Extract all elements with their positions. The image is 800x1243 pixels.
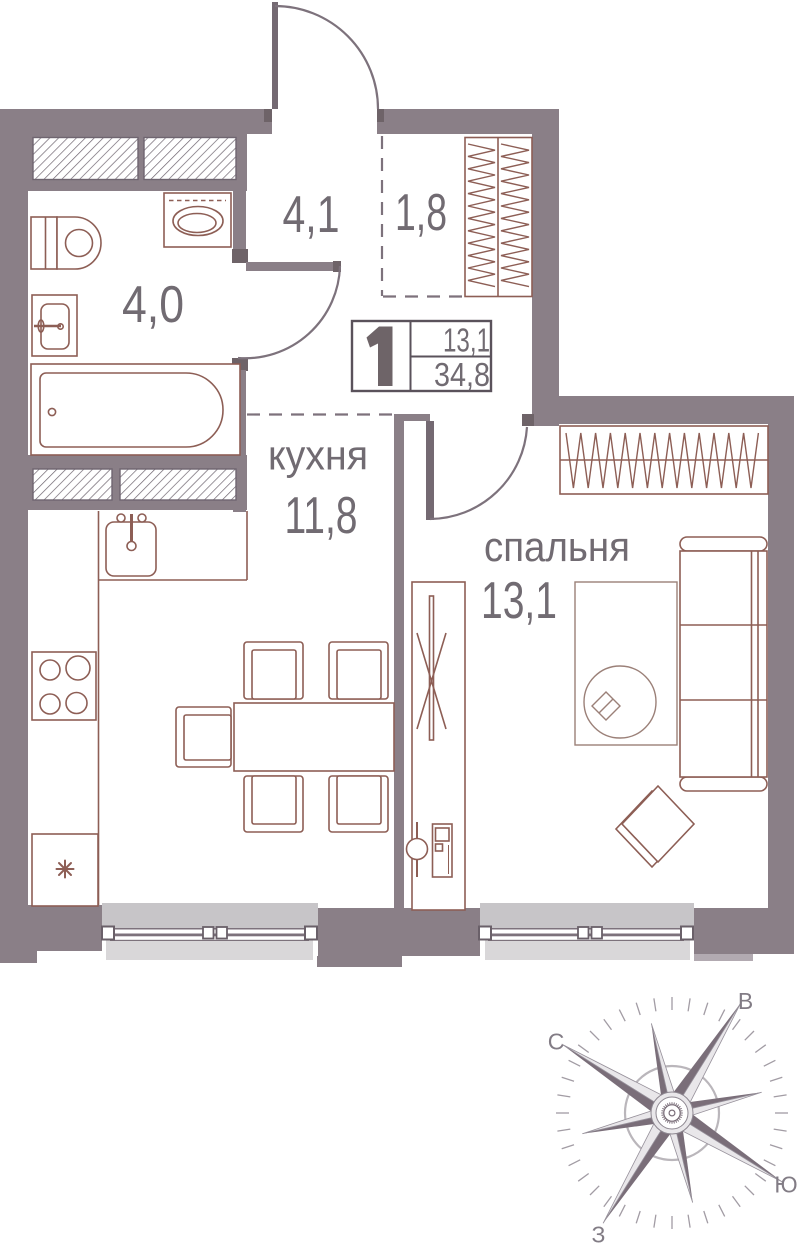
svg-text:4,0: 4,0 <box>122 276 184 334</box>
svg-text:1,8: 1,8 <box>395 184 447 242</box>
svg-text:кухня: кухня <box>268 432 368 479</box>
svg-text:13,1: 13,1 <box>481 572 557 630</box>
svg-text:З: З <box>592 1222 606 1243</box>
svg-text:4,1: 4,1 <box>283 186 340 244</box>
svg-text:34,8: 34,8 <box>434 356 490 393</box>
svg-text:спальня: спальня <box>484 523 630 570</box>
svg-text:11,8: 11,8 <box>285 487 358 545</box>
svg-text:13,1: 13,1 <box>443 322 490 359</box>
svg-text:С: С <box>548 1029 565 1055</box>
svg-text:Ю: Ю <box>774 1172 797 1198</box>
svg-text:В: В <box>738 988 753 1014</box>
